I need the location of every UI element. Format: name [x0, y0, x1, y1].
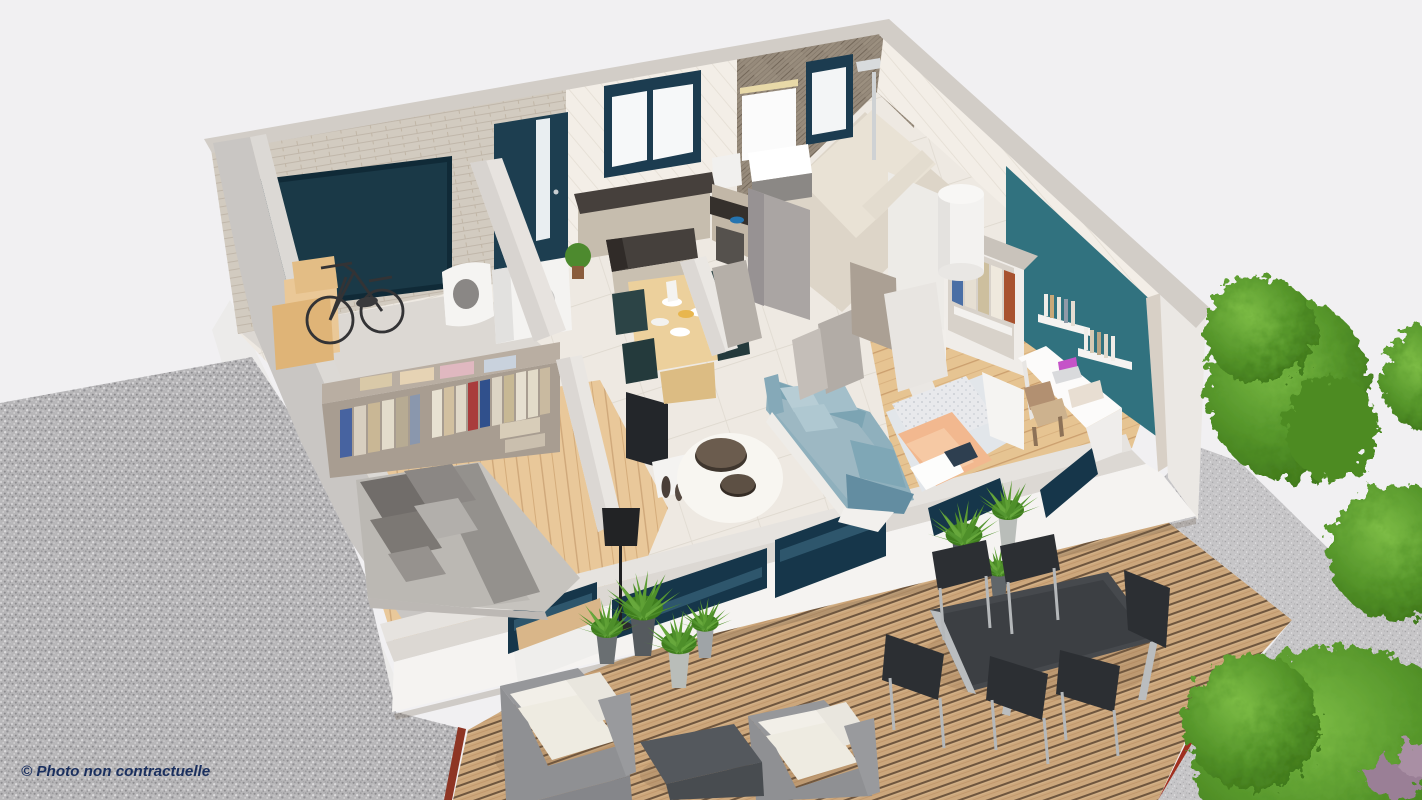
svg-text:© Photo non contractuelle: © Photo non contractuelle [21, 763, 211, 780]
